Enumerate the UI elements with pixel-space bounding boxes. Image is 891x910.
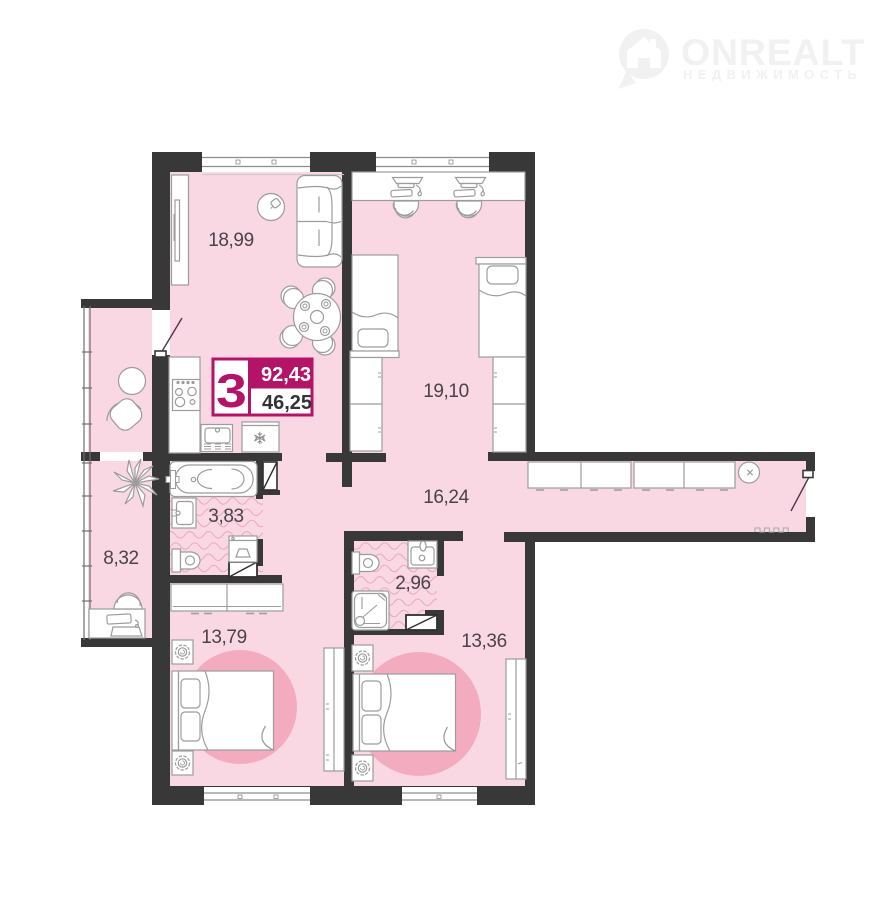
svg-text:2,96: 2,96: [395, 573, 430, 594]
svg-text:19,10: 19,10: [423, 381, 469, 402]
svg-text:92,43: 92,43: [261, 364, 311, 386]
svg-text:13,79: 13,79: [201, 627, 247, 648]
svg-text:16,24: 16,24: [423, 487, 469, 508]
svg-text:3: 3: [216, 365, 247, 417]
svg-text:НЕДВИЖИМОСТЬ: НЕДВИЖИМОСТЬ: [683, 67, 862, 82]
svg-text:18,99: 18,99: [208, 230, 254, 251]
svg-text:13,36: 13,36: [461, 631, 507, 652]
svg-text:3,83: 3,83: [208, 506, 243, 527]
svg-text:46,25: 46,25: [262, 392, 312, 414]
svg-text:8,32: 8,32: [103, 548, 138, 569]
